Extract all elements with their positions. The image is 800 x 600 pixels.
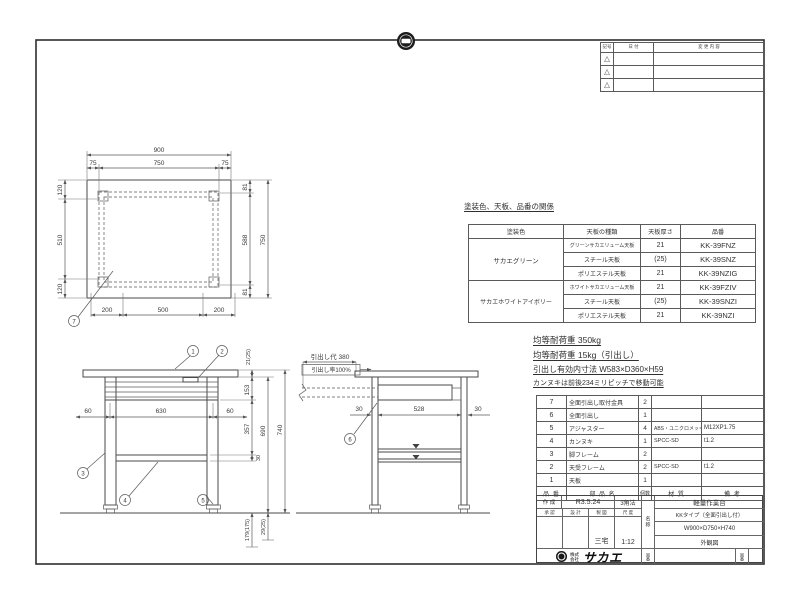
draft-label: 製 図 bbox=[589, 509, 615, 517]
dim-120-top: 120 bbox=[57, 184, 64, 195]
revision-triangle-icon: △ bbox=[601, 52, 614, 65]
dim-153: 153 bbox=[244, 384, 251, 395]
cross-rail bbox=[378, 449, 461, 452]
dim-81-bottom: 81 bbox=[242, 288, 249, 296]
side-view: 引出し代 380 引出し率100% 30 528 30 6 bbox=[296, 352, 490, 513]
table-top bbox=[83, 370, 238, 377]
drawing-scale: 1:12 bbox=[615, 517, 642, 549]
finish-color-ivory: サカエホワイトアイボリー bbox=[469, 281, 564, 323]
company-name: サカエ bbox=[583, 547, 622, 566]
finish-table-title: 塗装色、天板、品番の関係 bbox=[464, 201, 554, 212]
dim-630: 630 bbox=[156, 408, 167, 415]
revision-triangle-icon: △ bbox=[601, 78, 614, 91]
parts-row: 2 天受フレーム 2 SPCC-SD t1.2 bbox=[537, 461, 764, 474]
dim-21-25: 21(25) bbox=[246, 349, 252, 365]
dim-60-left: 60 bbox=[84, 408, 92, 415]
cross-rail bbox=[378, 459, 461, 462]
drawing-no-cell-2 bbox=[749, 549, 764, 564]
finish-table: 塗装色 天板の種類 天板厚さ 品番 サカエグリーン グリーンサカエリューム天板 … bbox=[468, 224, 756, 323]
dim-750-right: 750 bbox=[260, 234, 267, 245]
parts-row: 5 アジャスター 4 ABS・ユニクロメッキ M12XP1.75 bbox=[537, 422, 764, 435]
adjuster-foot bbox=[210, 509, 218, 513]
parts-row: 1 天板 1 bbox=[537, 474, 764, 487]
adjuster-foot bbox=[107, 509, 115, 513]
scale-label: 尺 度 bbox=[615, 509, 642, 517]
name-label: 名称 bbox=[642, 496, 655, 549]
balloon-1-label: 1 bbox=[191, 350, 195, 356]
approval-label: 承 認 bbox=[537, 509, 563, 517]
balloon-2-label: 2 bbox=[220, 350, 224, 356]
company-prefix: 株式会社 bbox=[570, 552, 580, 562]
drawer-stroke-label: 引出し代 380 bbox=[311, 352, 350, 361]
finish-header: 塗装色 天板の種類 天板厚さ 品番 bbox=[469, 225, 756, 239]
dim-750-top: 750 bbox=[154, 160, 165, 167]
parts-row: 4 カンヌキ 1 SPCC-SD t1.2 bbox=[537, 435, 764, 448]
company-logo: 株式会社 サカエ bbox=[537, 549, 642, 564]
top-view: 900 75 750 75 120 510 120 81 588 81 750 … bbox=[57, 147, 272, 327]
leg-frame-right bbox=[207, 377, 218, 505]
revision-header: 記号 日 付 変 更 内 容 bbox=[601, 42, 765, 52]
approval-cell bbox=[537, 517, 563, 549]
dim-900: 900 bbox=[154, 147, 165, 154]
dim-510: 510 bbox=[57, 234, 64, 245]
drawing-no-cell bbox=[655, 549, 736, 564]
leg-post bbox=[98, 191, 108, 201]
parts-list: 7 全面引出し取付金具 2 6 全面引出し 1 5 アジャスター 4 ABS・ユ… bbox=[536, 395, 764, 501]
drawing-type: 外観図 bbox=[655, 536, 764, 549]
balloon-6-label: 6 bbox=[348, 438, 352, 444]
balloon-7-label: 7 bbox=[72, 320, 76, 326]
drafter-name: 三宅 bbox=[589, 517, 615, 549]
revision-col-desc: 変 更 内 容 bbox=[654, 42, 765, 52]
product-size: W900×D750×H740 bbox=[655, 522, 764, 536]
spec-notes: 均等耐荷重 350kg 均等耐荷重 15kg（引出し） 引出し有効内寸法 W58… bbox=[533, 334, 765, 391]
dim-29-25: 29(25) bbox=[261, 519, 267, 535]
revision-table: 記号 日 付 変 更 内 容 △ △ △ bbox=[600, 42, 765, 92]
leg-frame-left bbox=[105, 377, 116, 505]
sakae-seal-icon bbox=[397, 32, 415, 50]
revision-row: △ bbox=[601, 65, 765, 78]
created-date: R3.5.24 bbox=[562, 496, 615, 509]
note-drawer-inner-size: 引出し有効内寸法 W583×D360×H59 bbox=[533, 364, 765, 375]
title-block: 作 成 R3.5.24 3角法 承 認 設 計 製 図 尺 度 三宅 1:12 … bbox=[536, 495, 763, 563]
dim-500: 500 bbox=[158, 307, 169, 314]
note-crossbar-pitch: カンヌキは前後234ミリピッチで移動可能 bbox=[533, 378, 765, 388]
dim-60-right: 60 bbox=[226, 408, 234, 415]
created-label: 作 成 bbox=[537, 496, 562, 509]
dim-357: 357 bbox=[244, 423, 251, 434]
dim-81-top: 81 bbox=[242, 183, 249, 191]
drawing-sheet: 900 75 750 75 120 510 120 81 588 81 750 … bbox=[0, 0, 800, 600]
finish-row: サカエグリーン グリーンサカエリューム天板 21 KK-39FNZ bbox=[469, 239, 756, 253]
design-cell bbox=[563, 517, 589, 549]
finish-row: サカエホワイトアイボリー ホワイトサカエリューム天板 21 KK-39FZIV bbox=[469, 281, 756, 295]
product-type: KKタイプ（全面引出し付） bbox=[655, 509, 764, 522]
lower-shelf bbox=[116, 455, 207, 461]
dim-200-right: 200 bbox=[214, 307, 225, 314]
dim-528: 528 bbox=[414, 406, 425, 413]
projection-method: 3角法 bbox=[615, 496, 642, 509]
revision-row: △ bbox=[601, 52, 765, 65]
finish-color-green: サカエグリーン bbox=[469, 239, 564, 281]
product-name: 軽量作業台 bbox=[655, 496, 764, 509]
drawer-rate-label: 引出し率100% bbox=[311, 366, 351, 374]
note-load-capacity: 均等耐荷重 350kg bbox=[533, 334, 765, 346]
parts-row: 3 脚フレーム 2 bbox=[537, 448, 764, 461]
design-label: 設 計 bbox=[563, 509, 589, 517]
drawer-handle bbox=[183, 378, 198, 383]
dim-75-right: 75 bbox=[221, 160, 229, 167]
dim-690: 690 bbox=[260, 425, 267, 436]
leg-post bbox=[209, 191, 219, 201]
dim-588: 588 bbox=[242, 234, 249, 245]
drawing-no-label: 図番 bbox=[642, 549, 655, 564]
parts-row: 6 全面引出し 1 bbox=[537, 409, 764, 422]
dim-30: 30 bbox=[256, 455, 262, 461]
revision-row: △ bbox=[601, 78, 765, 91]
dim-179-175: 179(175) bbox=[245, 519, 251, 541]
revision-triangle-icon: △ bbox=[601, 65, 614, 78]
table-top-side bbox=[355, 371, 478, 377]
dim-30-right: 30 bbox=[474, 406, 482, 413]
parts-row: 7 全面引出し取付金具 2 bbox=[537, 396, 764, 409]
dim-740: 740 bbox=[277, 424, 284, 435]
balloon-4-label: 4 bbox=[123, 499, 127, 505]
sakae-logo-icon bbox=[556, 551, 567, 562]
balloon-3-label: 3 bbox=[81, 472, 85, 478]
balloon-5-label: 5 bbox=[201, 499, 205, 505]
revision-col-date: 日 付 bbox=[614, 42, 654, 52]
dim-30-left: 30 bbox=[355, 406, 363, 413]
front-view: 60 630 60 21(25) 153 357 30 690 740 179(… bbox=[60, 346, 290, 548]
drawer-side bbox=[378, 385, 452, 400]
dim-75-left: 75 bbox=[89, 160, 97, 167]
drawing-no-label-2: 図番 bbox=[736, 549, 749, 564]
dim-200-left: 200 bbox=[102, 307, 113, 314]
note-drawer-capacity: 均等耐荷重 15kg（引出し） bbox=[533, 349, 765, 361]
revision-col-symbol: 記号 bbox=[601, 42, 614, 52]
dim-120-bottom: 120 bbox=[57, 283, 64, 294]
